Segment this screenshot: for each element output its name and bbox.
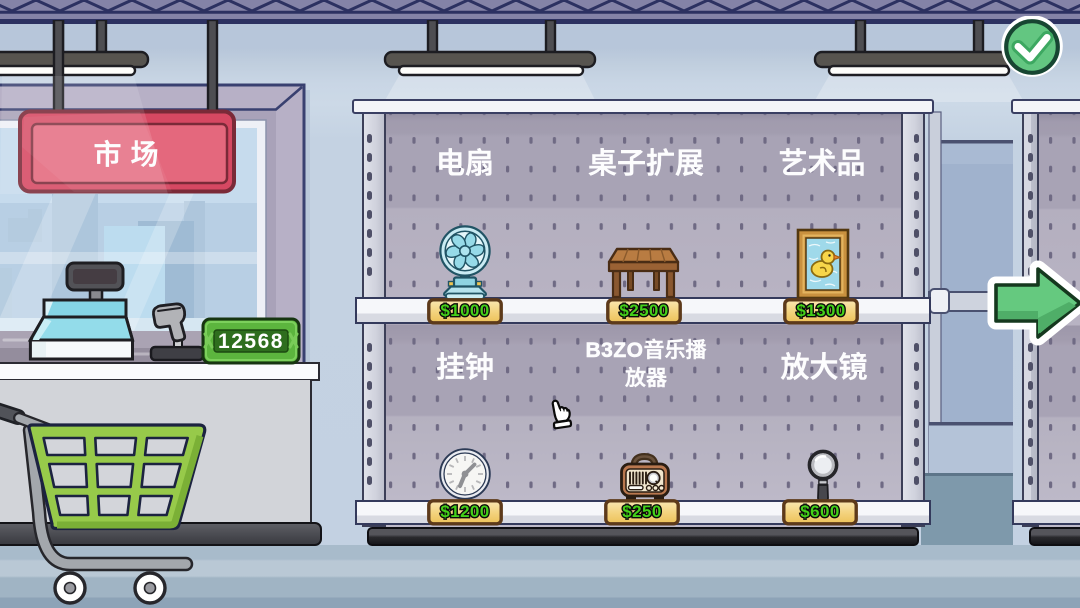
svg-text:$1000: $1000 — [440, 301, 489, 320]
svg-text:$1300: $1300 — [796, 301, 845, 320]
svg-text:$250: $250 — [622, 502, 661, 521]
svg-text:$600: $600 — [800, 502, 839, 521]
svg-text:$2500: $2500 — [619, 301, 668, 320]
svg-text:$1200: $1200 — [440, 502, 489, 521]
